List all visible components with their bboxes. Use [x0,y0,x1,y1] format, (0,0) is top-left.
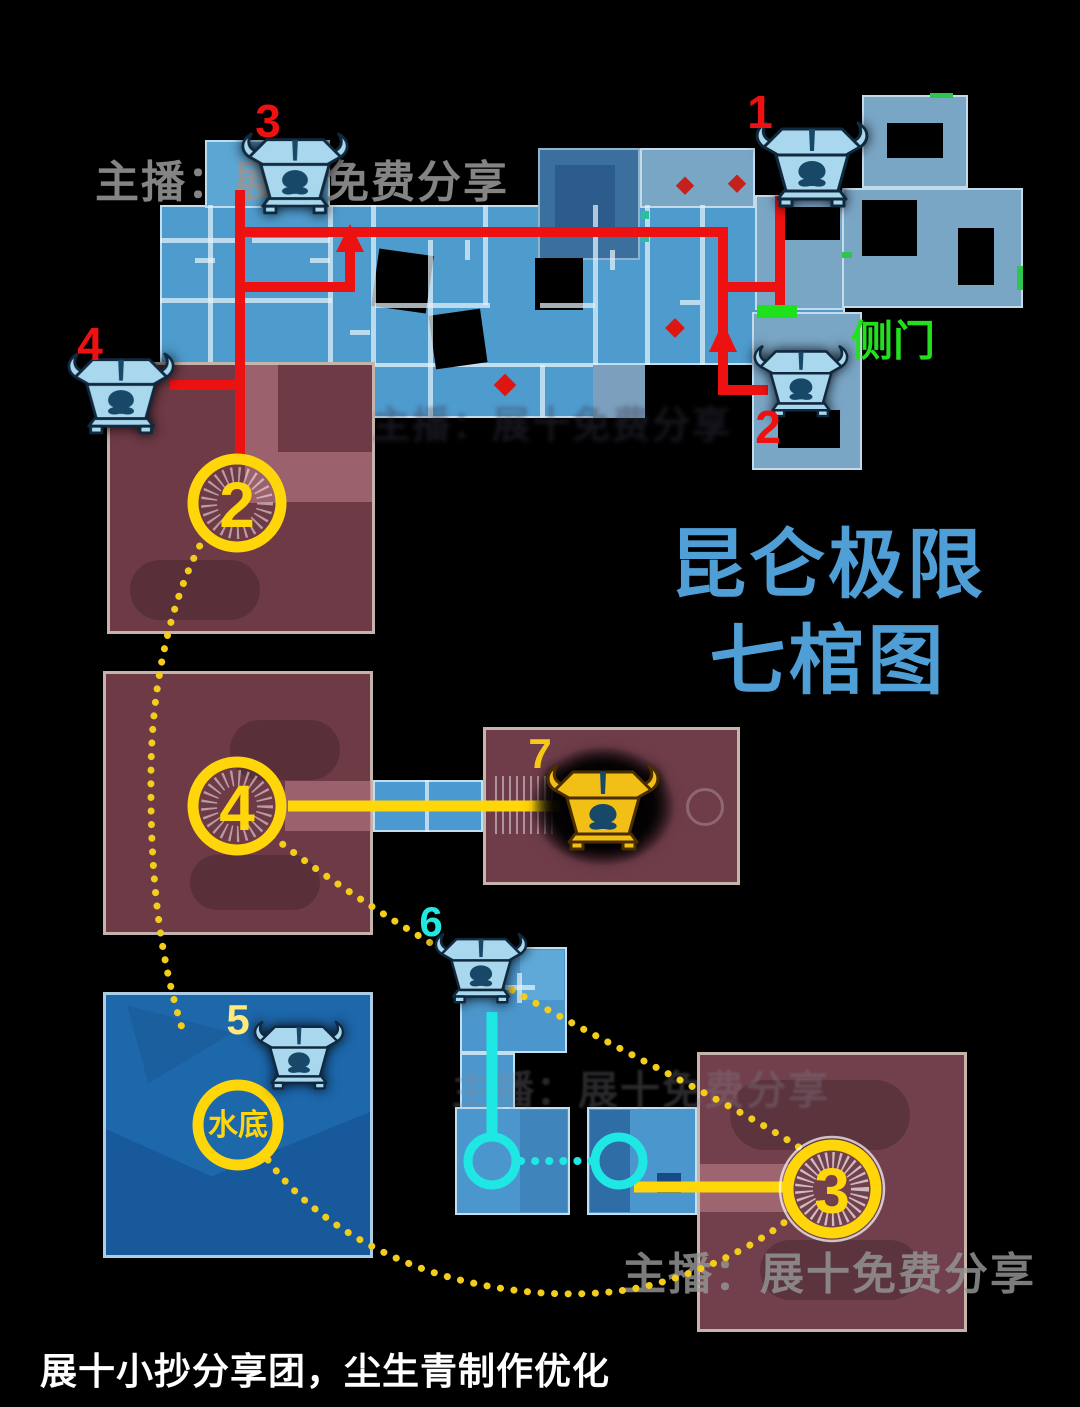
route-circle-3-number: 3 [814,1159,850,1223]
coffin-label-4: 4 [77,321,103,367]
map-title-line2: 七棺图 [636,614,1020,710]
coffin-label-3: 3 [255,98,281,144]
cyan-circle-marker [595,1137,643,1185]
underwater-circle-label: 水底 [208,1111,268,1141]
coffin-icon-5 [255,1022,343,1088]
side-door-label: 侧门 [851,308,935,369]
coffin-label-2: 2 [755,404,781,450]
red-diamond-marker [665,318,685,338]
coffin-icon-1 [757,123,867,206]
red-route-path [170,190,780,457]
red-diamond-marker [676,177,694,195]
map-title-line1: 昆仑极限 [636,518,1020,614]
red-route-arrow-up [709,322,737,352]
cyan-route [468,1012,643,1185]
map-guide-canvas: 主播：展十免费分享 主播：展十免费分享 主播：展十免费分享 主播：展十免费分享 [0,0,1080,1407]
coffin-label-1: 1 [747,89,773,135]
red-diamond-marker [728,175,746,193]
gold-route-line [288,806,788,1187]
route-circle-4-number: 4 [219,776,255,840]
coffin-label-6: 6 [419,901,442,943]
coffin-label-7: 7 [528,733,551,775]
route-circle-2-number: 2 [219,473,255,537]
map-title: 昆仑极限 七棺图 [636,518,1020,710]
credits-text: 展十小抄分享团，尘生青制作优化 [40,1341,610,1395]
red-diamond-marker [494,374,517,397]
cyan-circle-marker [468,1137,516,1185]
coffin-label-5: 5 [226,999,249,1041]
green-door-marker [757,305,797,318]
